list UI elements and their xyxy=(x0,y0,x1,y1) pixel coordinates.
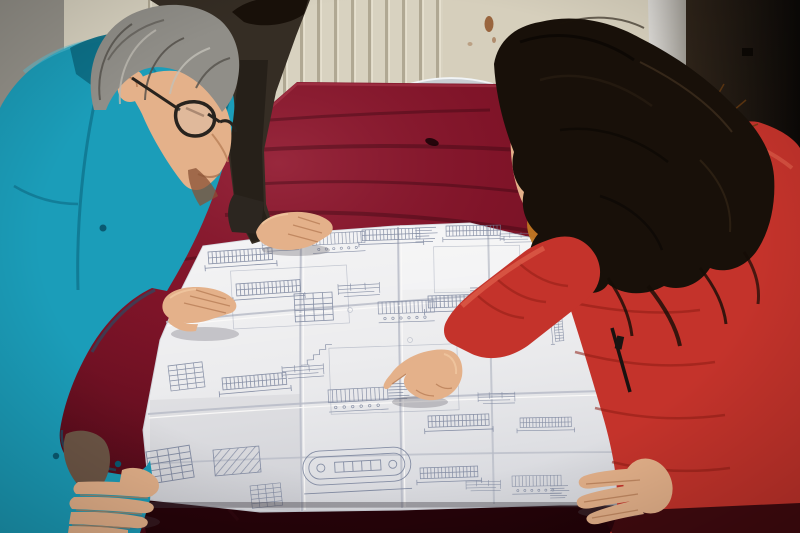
scene-svg xyxy=(0,0,800,533)
photo-figure xyxy=(0,0,800,533)
vignette xyxy=(0,0,800,533)
